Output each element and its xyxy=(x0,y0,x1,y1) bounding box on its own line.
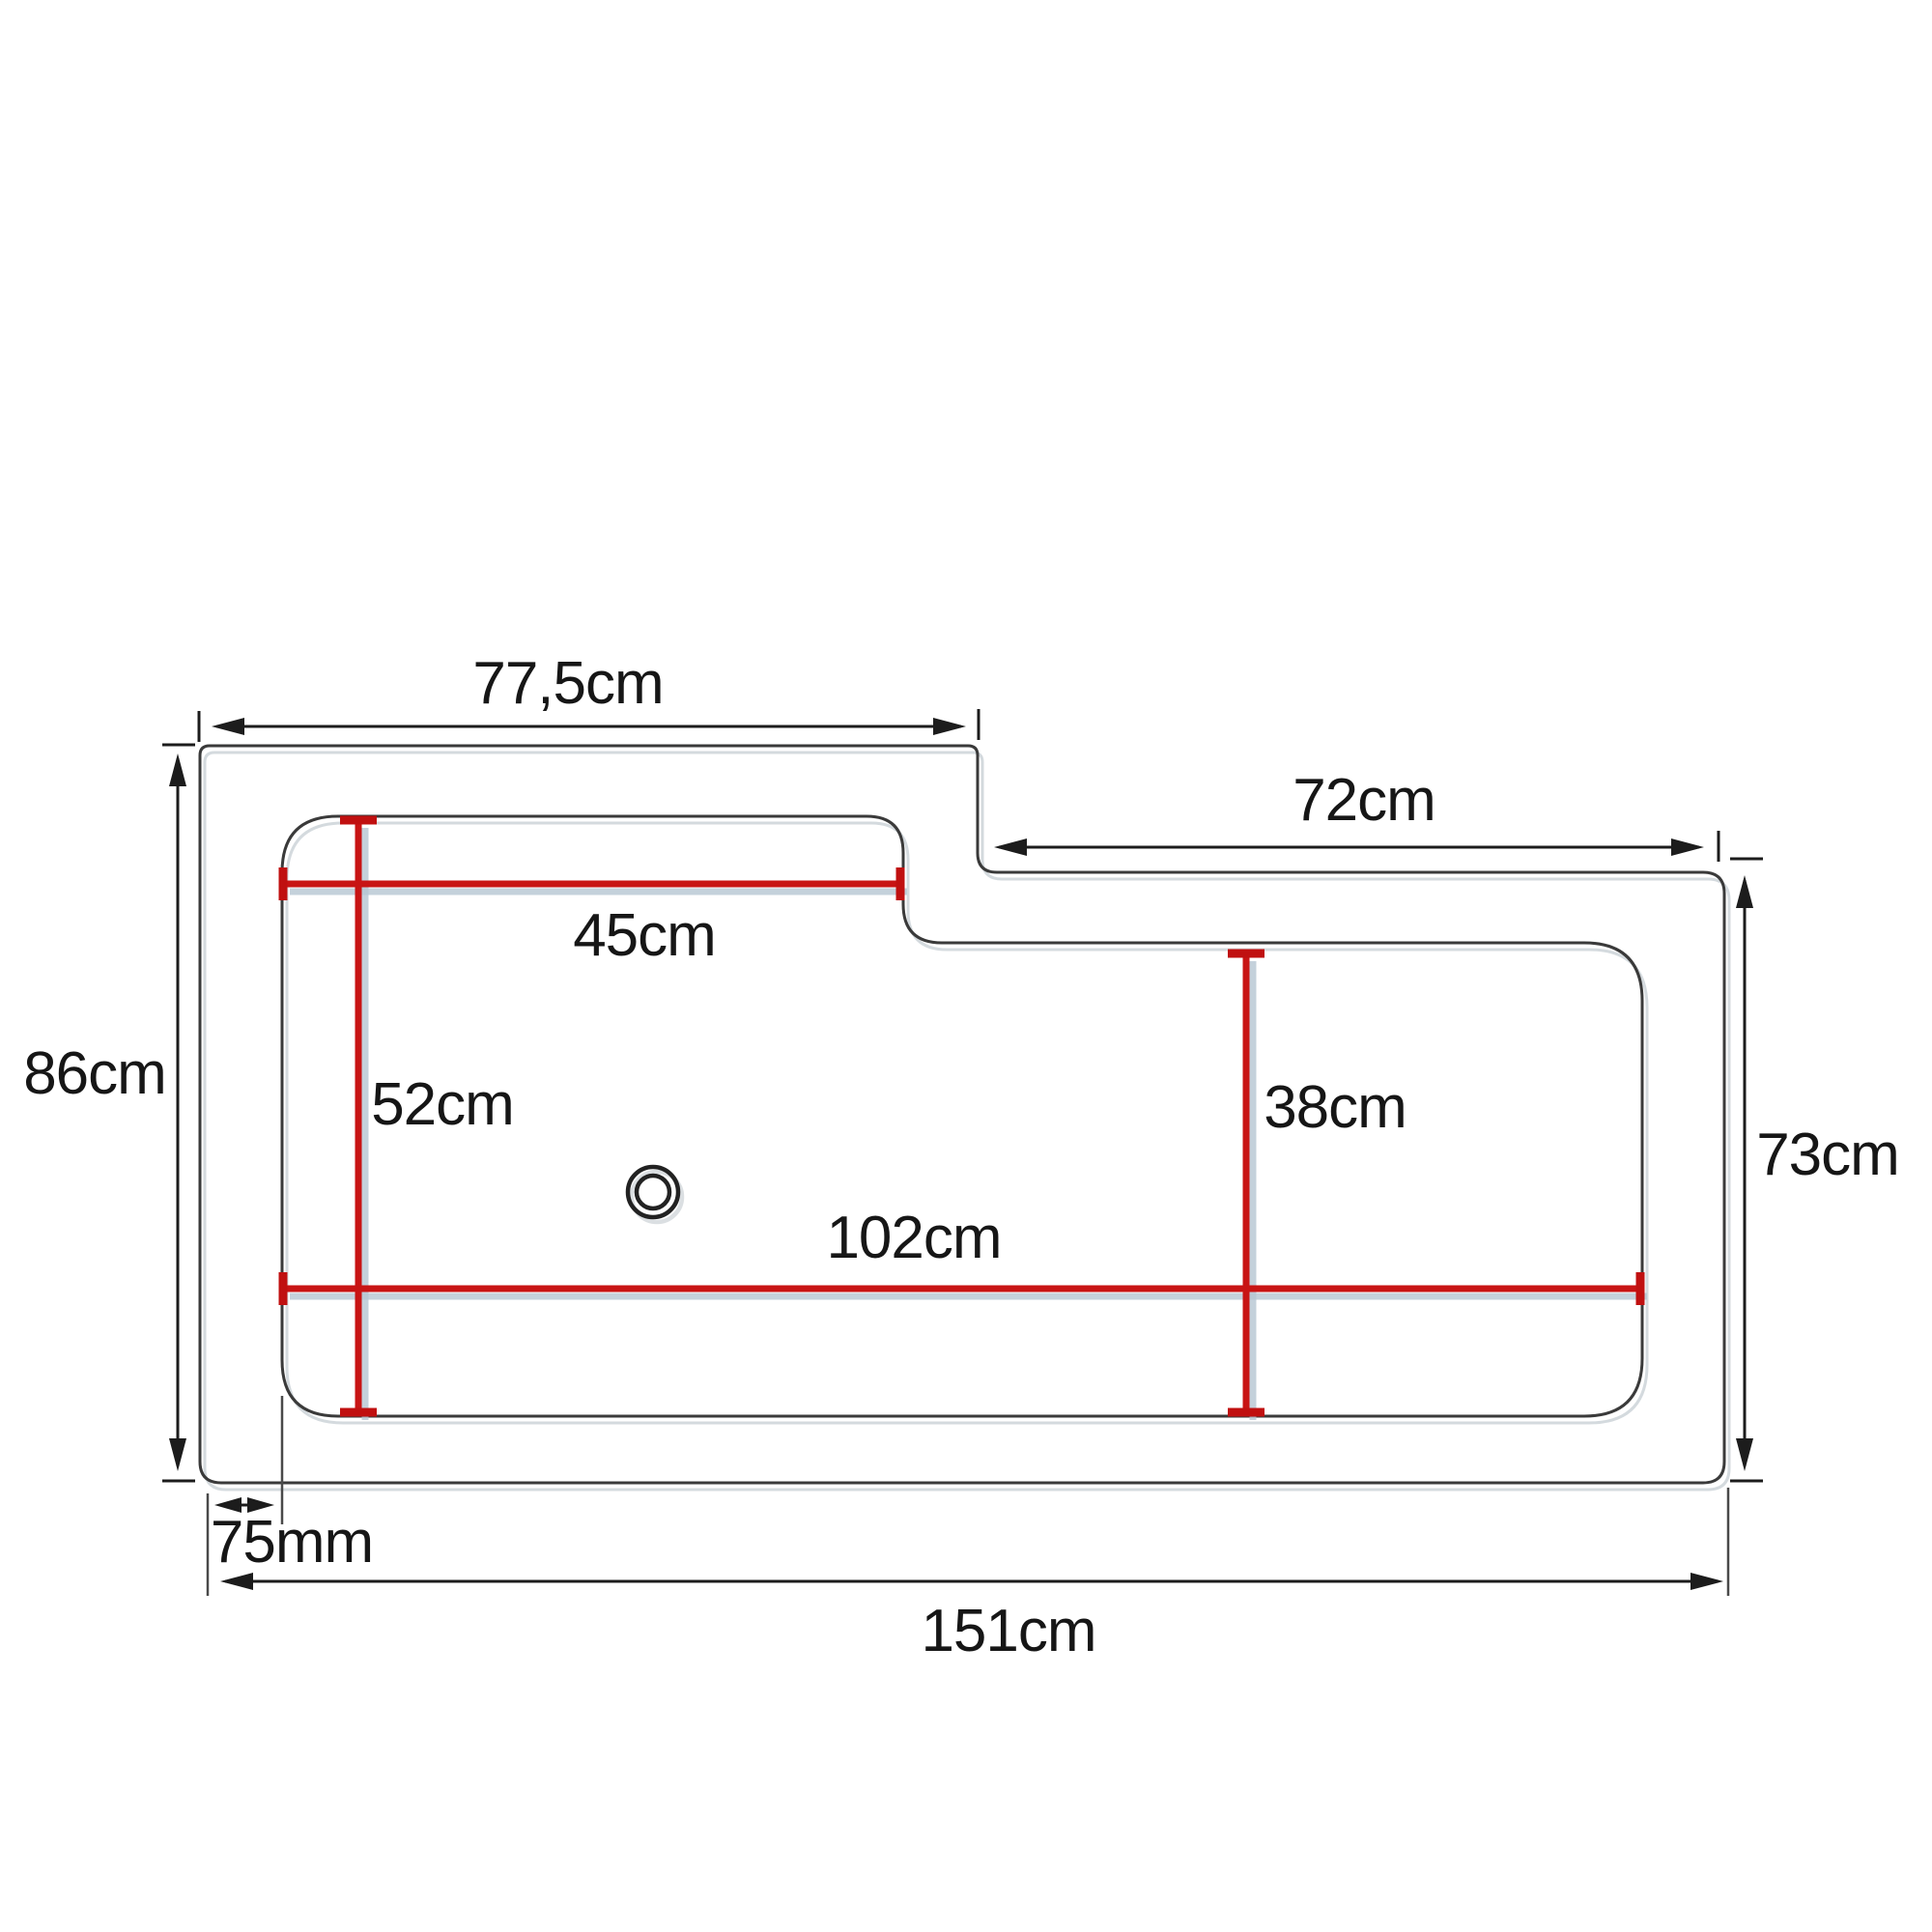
label-151cm: 151cm xyxy=(921,1602,1095,1662)
red-measure-102cm xyxy=(283,1272,1640,1305)
label-73cm: 73cm xyxy=(1756,1125,1899,1185)
drain-circle xyxy=(628,1167,682,1222)
label-52cm: 52cm xyxy=(371,1075,514,1135)
label-38cm: 38cm xyxy=(1264,1078,1406,1138)
label-75mm: 75mm xyxy=(211,1513,373,1573)
dim-72cm xyxy=(994,831,1719,862)
label-77-5cm: 77,5cm xyxy=(472,654,663,714)
dim-151cm xyxy=(220,1488,1728,1596)
red-measure-45cm xyxy=(283,867,900,900)
label-102cm: 102cm xyxy=(826,1208,1001,1268)
label-86cm: 86cm xyxy=(23,1044,166,1104)
dimension-diagram: 77,5cm 72cm 86cm 73cm 45cm 52cm 38cm 102… xyxy=(0,0,1932,1932)
label-45cm: 45cm xyxy=(573,906,716,966)
red-measure-38cm xyxy=(1228,953,1264,1412)
dim-86cm xyxy=(162,745,195,1481)
label-72cm: 72cm xyxy=(1293,771,1435,831)
